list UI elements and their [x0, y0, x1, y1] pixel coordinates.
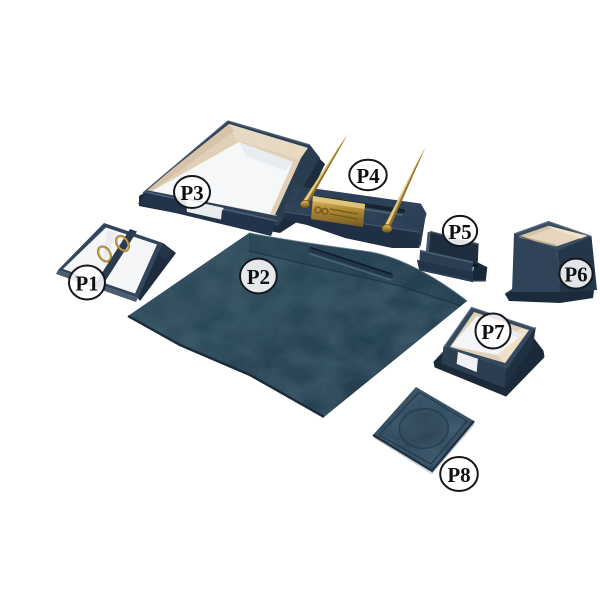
svg-text:P1: P1 [75, 272, 98, 296]
svg-text:P4: P4 [356, 164, 380, 188]
svg-text:P7: P7 [481, 320, 504, 344]
svg-text:P3: P3 [180, 181, 203, 205]
svg-text:P5: P5 [448, 220, 471, 244]
svg-text:P2: P2 [247, 265, 270, 289]
svg-text:P8: P8 [447, 463, 470, 487]
svg-text:P6: P6 [564, 263, 587, 287]
